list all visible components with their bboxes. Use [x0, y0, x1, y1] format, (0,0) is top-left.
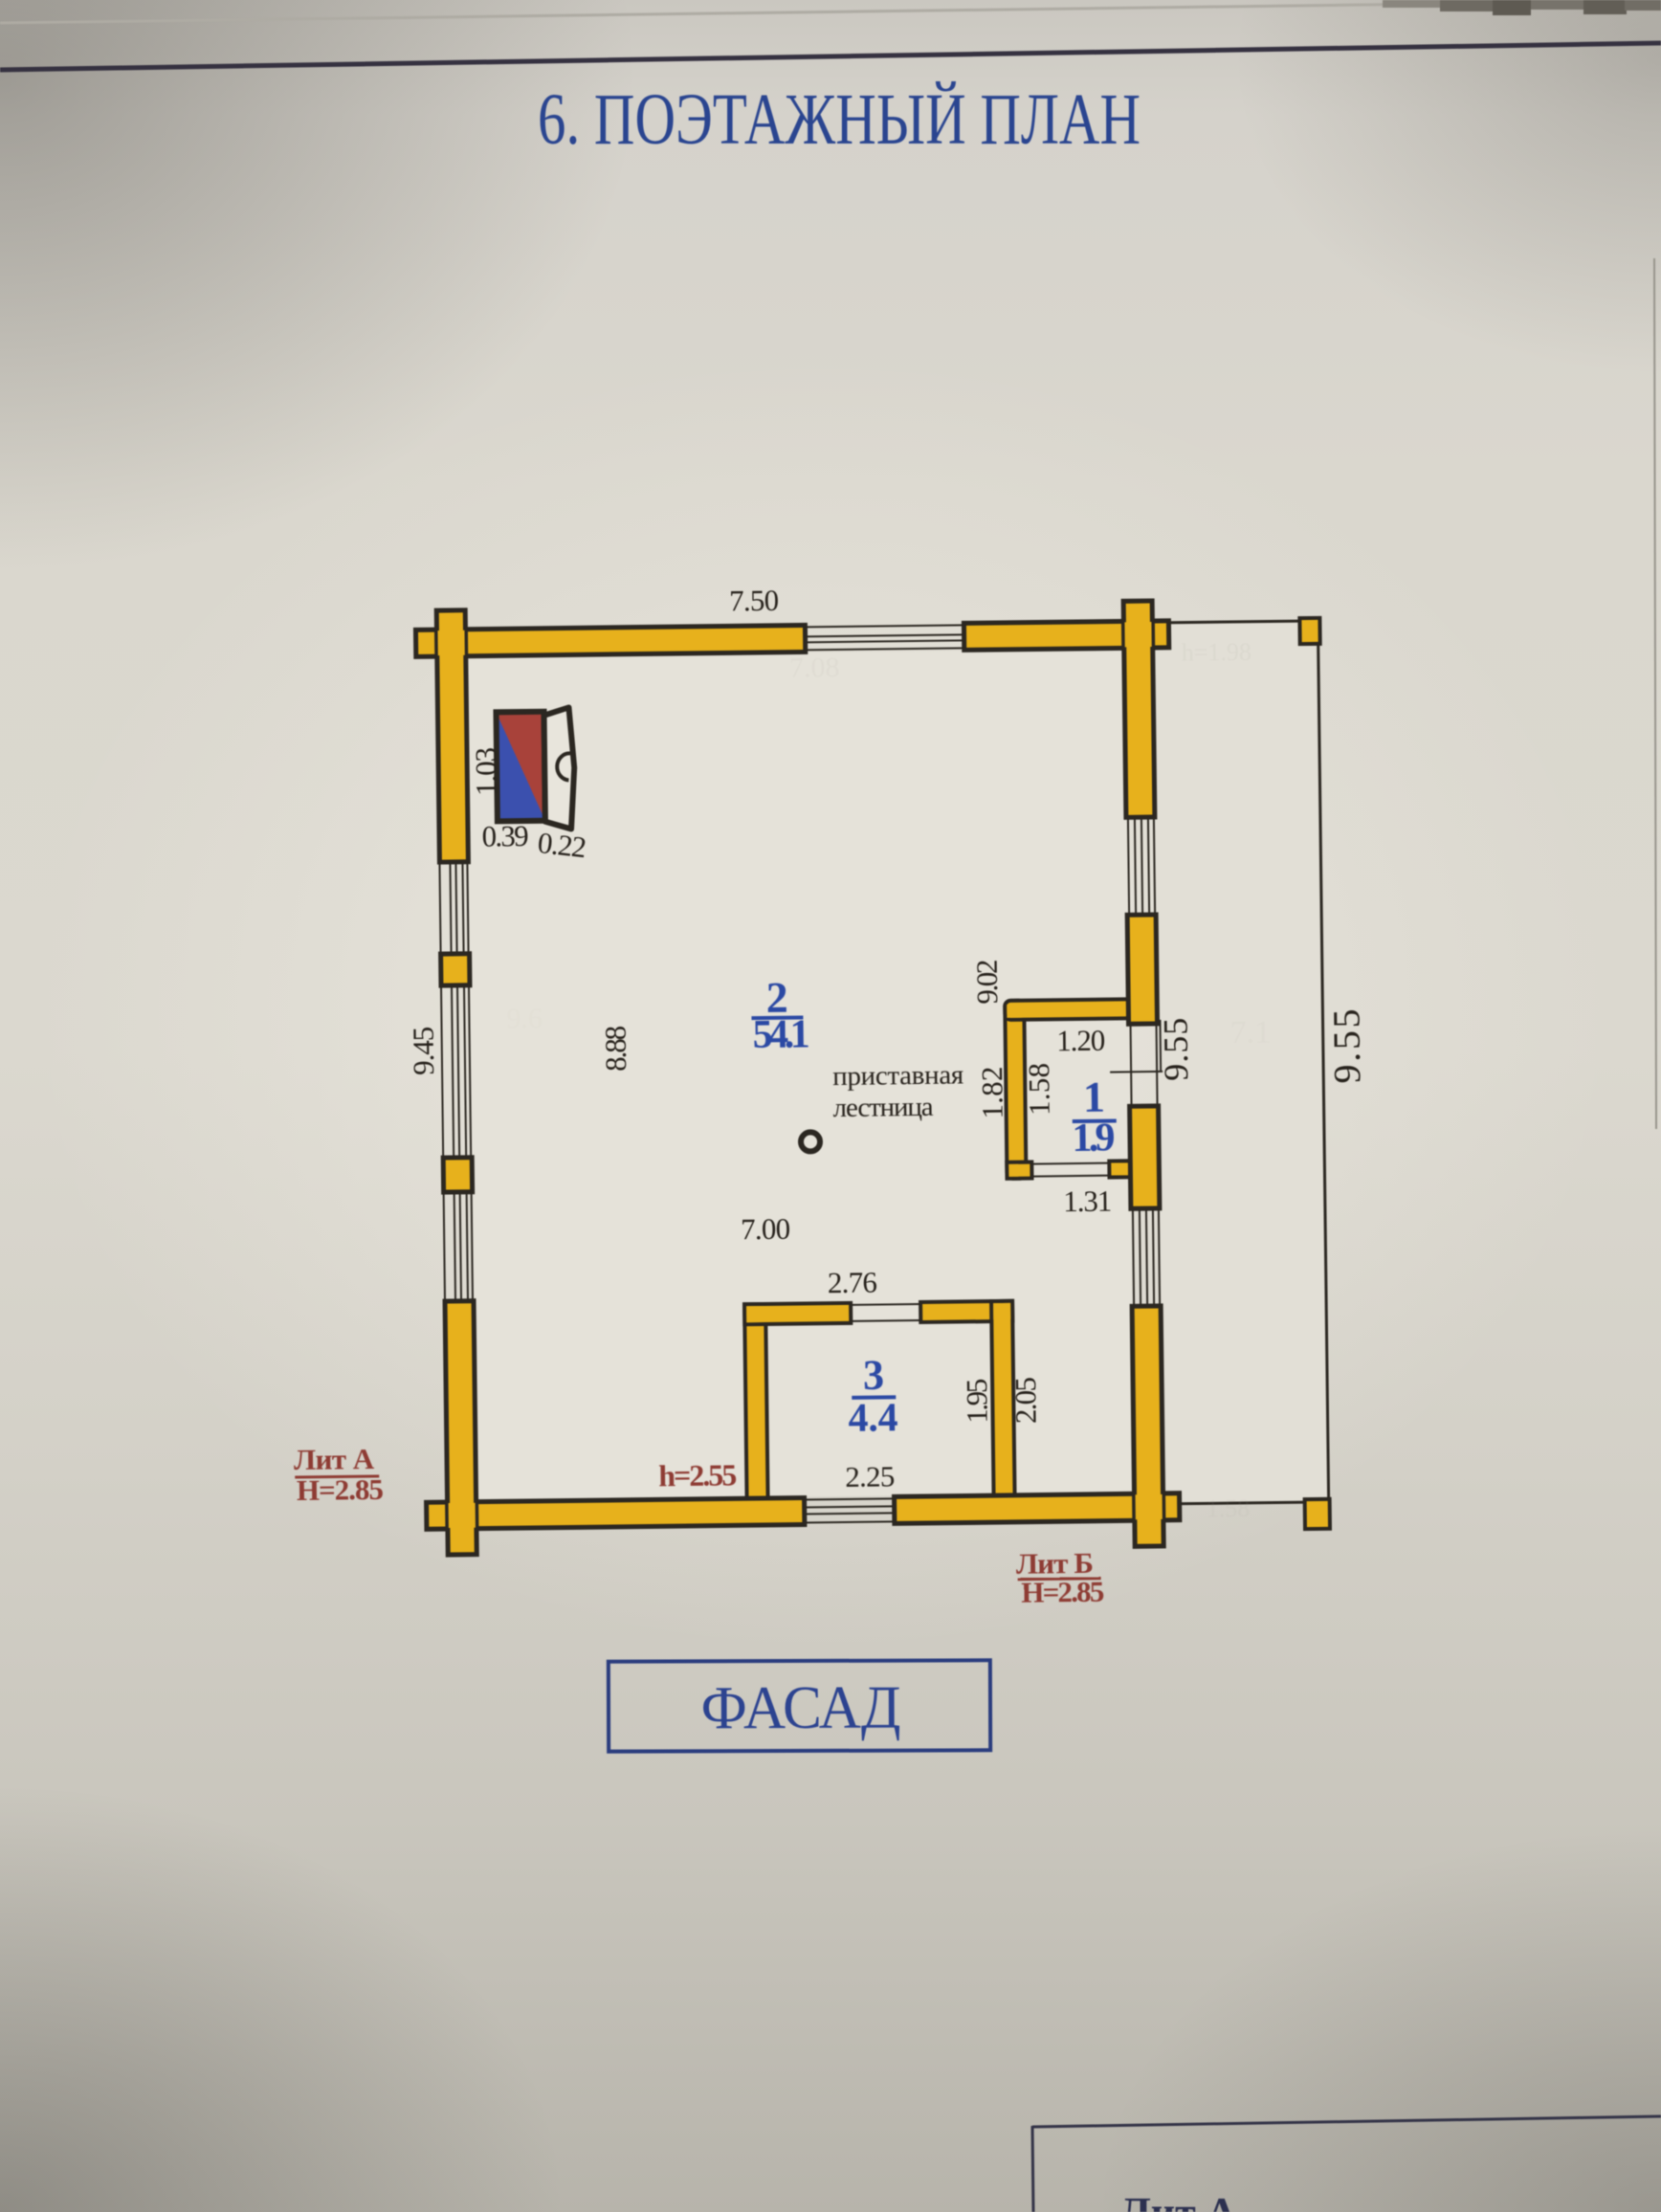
svg-text:ФАСАД: ФАСАД — [700, 1673, 900, 1742]
